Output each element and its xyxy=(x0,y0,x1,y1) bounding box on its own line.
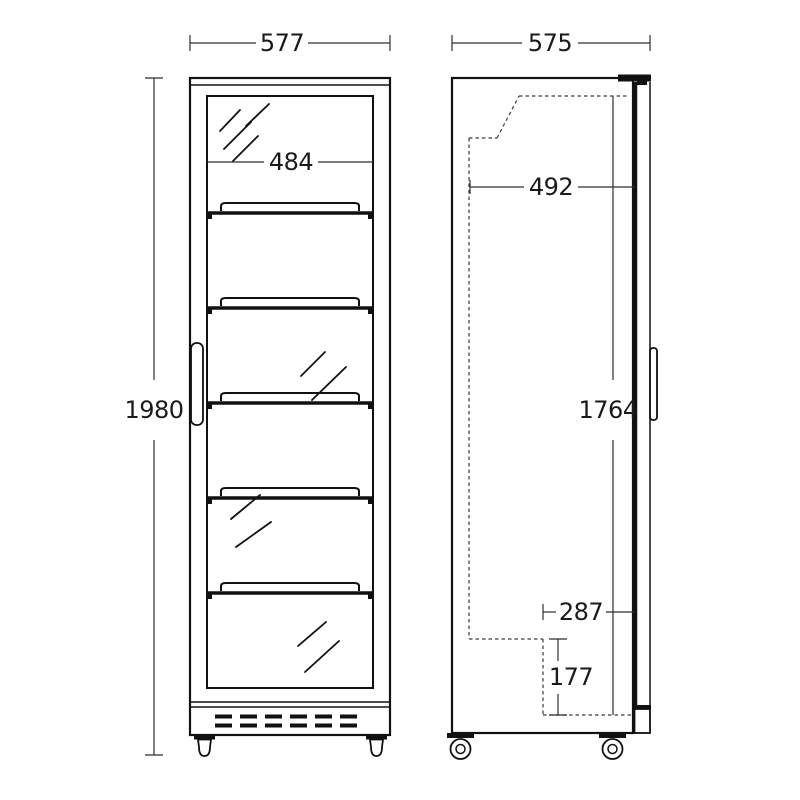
caster-wheel xyxy=(198,740,211,757)
shelf-clip-left xyxy=(206,594,212,599)
reflection-stroke xyxy=(301,352,325,376)
shelf-clip-left xyxy=(206,404,212,409)
shelf-price-rail xyxy=(221,393,359,401)
interior-line-top-slope xyxy=(497,96,519,138)
caster-front-left xyxy=(194,735,215,756)
door-handle-front xyxy=(191,343,203,425)
cabinet-outline-front xyxy=(190,78,390,735)
vent-slot xyxy=(240,724,257,728)
shelf-clip-right xyxy=(368,404,374,409)
glass-reflection-bottom xyxy=(298,622,339,672)
caster-side-left xyxy=(447,733,474,759)
shelf-price-rail xyxy=(221,488,359,496)
reflection-stroke xyxy=(298,622,326,646)
door-top-pivot xyxy=(637,80,647,85)
vent-slot xyxy=(215,715,232,719)
shelf-5 xyxy=(206,583,374,599)
dim-side-overall-depth: 575 xyxy=(452,29,650,57)
dim-side-lower-height: 177 xyxy=(549,639,593,715)
dim-label-overall-depth: 575 xyxy=(528,29,572,57)
caster-plate xyxy=(599,733,626,738)
caster-wheel xyxy=(370,740,383,757)
vent-slot xyxy=(240,715,257,719)
dim-label-overall-width: 577 xyxy=(260,29,304,57)
side-view: 575 492 1764 287 177 xyxy=(447,29,657,759)
shelf-clip-left xyxy=(206,309,212,314)
vent-slot xyxy=(290,724,307,728)
shelf-clip-right xyxy=(368,594,374,599)
vent-slot xyxy=(215,724,232,728)
door-handle-side xyxy=(650,348,657,420)
reflection-stroke xyxy=(224,122,251,149)
vent-slot xyxy=(315,724,332,728)
shelf-3 xyxy=(206,393,374,409)
shelf-clip-left xyxy=(206,499,212,504)
dim-side-lower-depth: 287 xyxy=(543,598,635,626)
dim-label-lower-depth: 287 xyxy=(559,598,603,626)
glass-reflection-top xyxy=(220,104,269,161)
reflection-stroke xyxy=(312,367,346,400)
shelf-clip-left xyxy=(206,214,212,219)
caster-wheel xyxy=(603,739,623,759)
vent-slot xyxy=(265,715,282,719)
vent-grille xyxy=(215,715,357,728)
caster-front-right xyxy=(366,735,387,756)
shelf-clip-right xyxy=(368,309,374,314)
front-view: 577 484 1980 xyxy=(124,29,390,756)
vent-slot xyxy=(290,715,307,719)
reflection-stroke xyxy=(236,522,271,547)
dim-label-overall-height: 1980 xyxy=(124,396,183,424)
dim-front-overall-width: 577 xyxy=(190,29,390,57)
dim-label-interior-height: 1764 xyxy=(578,396,637,424)
shelf-clip-right xyxy=(368,214,374,219)
vent-slot xyxy=(340,715,357,719)
dim-front-glass-width: 484 xyxy=(207,148,373,176)
caster-side-right xyxy=(599,733,626,759)
dim-front-overall-height: 1980 xyxy=(124,78,183,755)
door-bottom-hinge-block xyxy=(635,709,651,733)
shelf-price-rail xyxy=(221,583,359,591)
technical-drawing-canvas: 577 484 1980 xyxy=(0,0,800,800)
dim-label-glass-width: 484 xyxy=(269,148,313,176)
caster-wheel xyxy=(451,739,471,759)
vent-slot xyxy=(265,724,282,728)
refrigerator-dimension-drawing: 577 484 1980 xyxy=(0,0,800,800)
dim-label-lower-height: 177 xyxy=(549,663,593,691)
shelf-price-rail xyxy=(221,203,359,211)
reflection-stroke xyxy=(233,136,258,161)
shelf-1 xyxy=(206,203,374,219)
vent-slot xyxy=(340,724,357,728)
shelf-4 xyxy=(206,488,374,504)
vent-slot xyxy=(315,715,332,719)
glass-reflection-lower xyxy=(231,495,271,547)
shelf-price-rail xyxy=(221,298,359,306)
reflection-stroke xyxy=(305,641,339,672)
shelf-clip-right xyxy=(368,499,374,504)
dim-label-interior-depth: 492 xyxy=(529,173,573,201)
caster-plate xyxy=(447,733,474,738)
reflection-stroke xyxy=(220,110,240,131)
shelf-2 xyxy=(206,298,374,314)
dim-side-interior-depth: 492 xyxy=(470,173,635,201)
